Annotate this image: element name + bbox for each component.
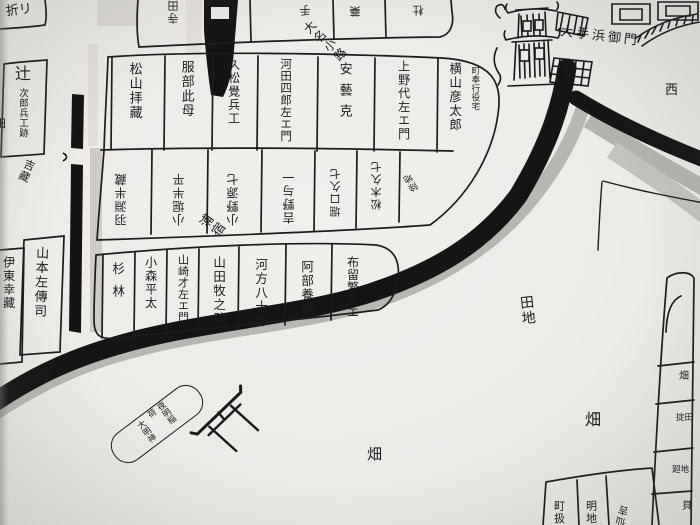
plot-label-yokoyama: 横山彦太郎 bbox=[448, 62, 461, 142]
plot-label-furu: 布留繁五エ bbox=[346, 256, 359, 328]
plot-label-right-strip-1: 畑 bbox=[679, 372, 689, 383]
plot-label-abe: 阿部養庵 bbox=[300, 260, 313, 330]
plot-label-yamazaki: 山崎才左エ門 bbox=[177, 254, 189, 338]
plot-label-kawakata: 河方八十郎 bbox=[254, 258, 267, 334]
plot-label-ueno: 上野代左エ門 bbox=[397, 60, 410, 150]
plot-label-row2-4: 吉野与一 bbox=[283, 156, 296, 224]
plot-label-hattori: 服部此母 bbox=[179, 60, 193, 146]
compass-west-label: 西 bbox=[665, 84, 678, 98]
plot-label-row2-2: 小堀半平 bbox=[173, 154, 186, 226]
plot-label-tsuji-sub: 次郎兵工跡 bbox=[17, 88, 27, 152]
field-label-hata-bottom: 畑 bbox=[367, 447, 382, 463]
castle-gate-drawing bbox=[494, 2, 700, 86]
plot-label-top-left-corner: 折リ bbox=[5, 2, 32, 19]
plot-label-top-row-3: 藥 bbox=[350, 0, 362, 17]
plot-label-yamada: 山田牧之助 bbox=[212, 256, 225, 336]
plot-label-bottom-row-2: 明地 bbox=[585, 500, 597, 525]
plot-label-right-strip-3: 廻地 bbox=[672, 466, 689, 475]
plot-label-row2-6: 松木久七 bbox=[371, 150, 383, 210]
plot-label-hisamatsu: 久松覺兵工 bbox=[227, 58, 240, 150]
plot-label-tsuji: 辻 bbox=[15, 66, 31, 83]
plot-label-row2-5: 堀口久七 bbox=[330, 153, 342, 217]
edo-town-map: 折リ 辻 次郎兵工跡 田 吉藏 山本左傳司 伊東幸藏 寺田 手 藥 杜 大名小路… bbox=[0, 0, 700, 525]
plot-label-row2-1: 羽淵半藏 bbox=[115, 156, 128, 226]
plot-label-aki: 安藝克 bbox=[337, 62, 351, 134]
plot-label-kawada: 河田四郎左エ門 bbox=[280, 58, 292, 152]
plot-label-bottom-row-1: 町扱 bbox=[553, 500, 565, 525]
plot-label-left-fragment: 田 bbox=[0, 118, 6, 130]
plot-label-komori: 小森平太 bbox=[144, 256, 157, 330]
plot-label-top-row-1: 寺田 bbox=[168, 0, 180, 24]
plot-label-row2-3: 小野源七 bbox=[227, 154, 240, 226]
plot-label-ito: 伊東幸藏 bbox=[2, 256, 15, 352]
plot-label-right-strip-2: 掟田 bbox=[676, 414, 693, 423]
note-magistrate-residence: 町奉行役宅 bbox=[470, 66, 479, 130]
plot-label-sugibayashi: 杉林 bbox=[111, 262, 124, 324]
plot-label-right-strip-4: 貝 bbox=[682, 502, 692, 513]
plot-label-top-row-2: 手 bbox=[300, 0, 312, 16]
field-label-hata-right: 畑 bbox=[585, 412, 604, 429]
plot-label-top-row-4: 杜 bbox=[413, 0, 425, 16]
plot-label-matsuyama: 松山拝藏 bbox=[127, 62, 141, 146]
